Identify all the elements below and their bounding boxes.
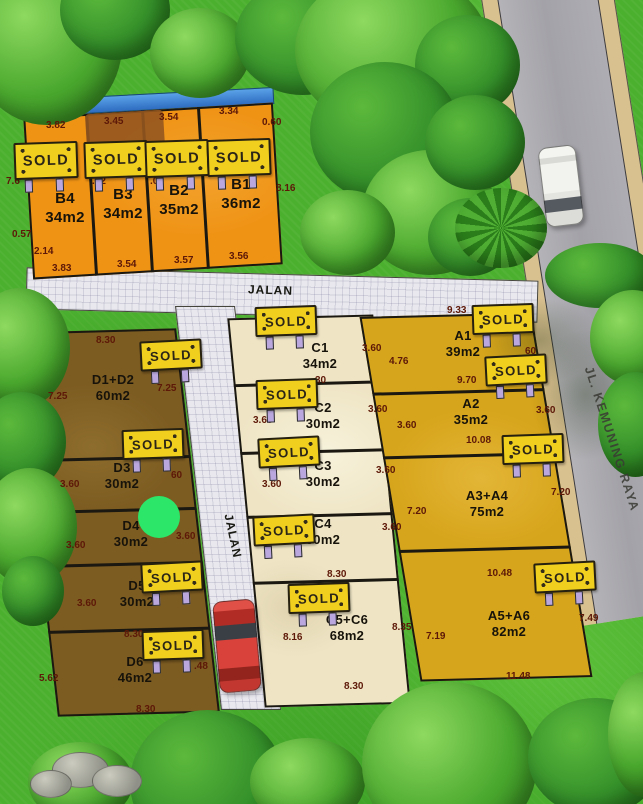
lot-name: C5+C6 (312, 612, 382, 628)
sold-sign-label: SOLD (254, 305, 317, 337)
lot-b2: B2 35m2 (144, 182, 214, 220)
dimension-label: 3.60 (382, 523, 401, 533)
dimension-label: 3.54 (159, 113, 178, 123)
sold-sign-label: SOLD (287, 582, 350, 614)
dimension-label: 0.57 (12, 230, 31, 240)
dimension-label: 8.30 (96, 336, 115, 346)
dimension-label: 3.56 (229, 252, 248, 262)
dimension-label: 3.60 (368, 405, 387, 415)
tree (300, 190, 395, 275)
dimension-label: 60 (171, 471, 182, 481)
lot-name: D3 (87, 460, 157, 476)
available-marker-dot (138, 496, 180, 538)
red-car (212, 598, 262, 693)
sold-sign-label: SOLD (140, 560, 203, 593)
dimension-label: 8.16 (283, 633, 302, 643)
lot-divider (399, 546, 571, 553)
dimension-label: 3.60 (60, 480, 79, 490)
dimension-label: 10.48 (487, 569, 512, 579)
dimension-label: 3.60 (397, 421, 416, 431)
siteplan-scene: JALAN JALAN JL. KEMUNING RAYA B4 34m2 B3… (0, 0, 643, 804)
dimension-label: 7.25 (48, 392, 67, 402)
sold-sign: SOLD (287, 582, 350, 614)
sold-sign-label: SOLD (252, 513, 315, 546)
dimension-label: 2.14 (34, 247, 53, 257)
lot-area: 34m2 (285, 356, 355, 372)
sold-sign-label: SOLD (471, 303, 534, 335)
sold-sign: SOLD (13, 141, 78, 180)
sold-sign: SOLD (484, 353, 547, 386)
dimension-label: 3.60 (176, 532, 195, 542)
lot-name: A3+A4 (452, 488, 522, 504)
lot-area: 82m2 (474, 624, 544, 640)
sold-sign: SOLD (83, 140, 148, 179)
sold-sign: SOLD (533, 560, 596, 593)
sold-sign-label: SOLD (139, 338, 202, 371)
palm-tree (455, 188, 547, 268)
sold-sign: SOLD (139, 338, 202, 371)
sold-sign: SOLD (471, 303, 534, 335)
sold-sign-label: SOLD (141, 629, 204, 661)
sold-sign-label: SOLD (144, 139, 209, 178)
sold-sign: SOLD (255, 378, 318, 410)
dimension-label: 9.33 (447, 306, 466, 316)
lot-a2: A2 35m2 (436, 396, 506, 429)
lot-name: A5+A6 (474, 608, 544, 624)
sold-sign: SOLD (141, 629, 204, 661)
dimension-label: 3.60 (262, 480, 281, 490)
dimension-label: 11.48 (506, 672, 530, 682)
lot-area: 30m2 (102, 594, 172, 610)
dimension-label: 7.49 (579, 614, 598, 624)
dimension-label: 7.25 (157, 384, 176, 394)
dimension-label: 3.45 (104, 117, 123, 127)
dimension-label: 3.60 (362, 344, 381, 354)
sold-sign: SOLD (257, 435, 320, 468)
lot-area: 75m2 (452, 504, 522, 520)
dimension-label: 3.60 (66, 541, 85, 551)
dimension-label: 3.60 (536, 406, 555, 416)
lot-name: D1+D2 (78, 372, 148, 388)
sold-sign-label: SOLD (206, 138, 271, 177)
sold-sign: SOLD (144, 139, 209, 178)
lot-area: 60m2 (78, 388, 148, 404)
sold-sign-label: SOLD (533, 560, 596, 593)
tree (150, 8, 250, 98)
lot-area: 30m2 (87, 476, 157, 492)
dimension-label: 3.34 (219, 107, 238, 117)
dimension-label: 3.54 (117, 260, 136, 270)
dimension-label: 3.57 (174, 256, 193, 266)
dimension-label: .48 (194, 662, 208, 672)
tree (2, 556, 64, 626)
dimension-label: 8.30 (136, 705, 155, 715)
sold-sign-label: SOLD (257, 435, 320, 468)
dimension-label: 8.30 (327, 570, 346, 580)
rock (30, 770, 72, 798)
sold-sign-label: SOLD (484, 353, 547, 386)
sold-sign-label: SOLD (121, 428, 184, 460)
lot-a34: A3+A4 75m2 (452, 488, 522, 521)
dimension-label: 7.19 (426, 632, 445, 642)
sold-sign: SOLD (501, 433, 564, 465)
lot-area: 36m2 (206, 195, 276, 214)
dimension-label: 8.35 (392, 623, 411, 633)
dimension-label: 3.60 (77, 599, 96, 609)
lot-area: 35m2 (144, 201, 214, 220)
dimension-label: 3.83 (52, 264, 71, 274)
lot-d3: D3 30m2 (87, 460, 157, 493)
dimension-label: 8.30 (344, 682, 363, 692)
sold-sign-label: SOLD (501, 433, 564, 465)
dimension-label: 9.70 (457, 376, 476, 386)
dimension-label: 7.20 (407, 507, 426, 517)
rock (92, 765, 142, 797)
sold-sign-label: SOLD (255, 378, 318, 410)
lot-divider (372, 388, 544, 395)
lot-area: 68m2 (312, 628, 382, 644)
sold-sign: SOLD (121, 428, 184, 460)
dimension-label: 8.16 (276, 184, 295, 194)
dimension-label: 5.62 (39, 674, 58, 684)
lot-a56: A5+A6 82m2 (474, 608, 544, 641)
lot-d12: D1+D2 60m2 (78, 372, 148, 405)
dimension-label: 4.76 (389, 357, 408, 367)
dimension-label: 3.60 (376, 466, 395, 476)
sold-sign: SOLD (254, 305, 317, 337)
dimension-label: 3.82 (46, 121, 65, 131)
lot-name: B1 (206, 176, 276, 195)
sold-sign: SOLD (252, 513, 315, 546)
sold-sign: SOLD (140, 560, 203, 593)
lot-b1: B1 36m2 (206, 176, 276, 214)
sold-sign-label: SOLD (13, 141, 78, 180)
sold-sign-label: SOLD (83, 140, 148, 179)
dimension-label: 7.20 (551, 488, 570, 498)
top-road-name: JALAN (248, 282, 293, 298)
lot-c56: C5+C6 68m2 (312, 612, 382, 645)
dimension-label: 10.08 (466, 436, 491, 446)
sold-sign: SOLD (206, 138, 271, 177)
dimension-label: 0.60 (262, 118, 281, 128)
tree (425, 95, 525, 190)
lot-area: 35m2 (436, 412, 506, 428)
